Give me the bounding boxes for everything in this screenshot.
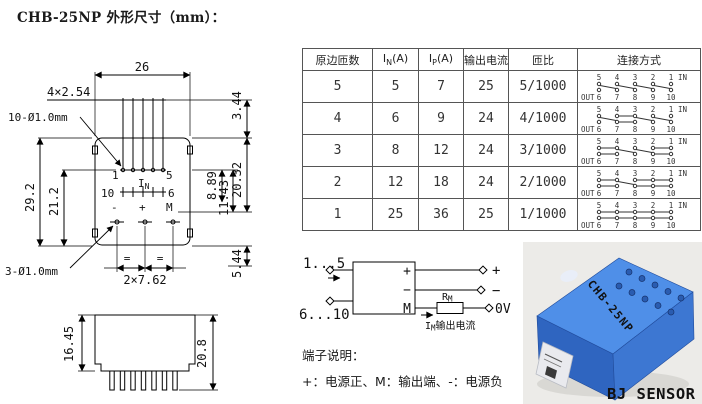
spec-row: 21218242/1000INOUT54321678910 xyxy=(303,167,701,199)
svg-text:29.2: 29.2 xyxy=(23,183,37,212)
svg-text:1: 1 xyxy=(669,105,674,114)
svg-text:IN: IN xyxy=(678,105,687,114)
front-view-labels: 26 4×2.54 10-Ø1.0mm 29.2 21.2 1 5 IN 10 … xyxy=(5,60,244,287)
svg-text:1: 1 xyxy=(669,169,674,178)
svg-text:6: 6 xyxy=(597,93,602,102)
svg-text:6: 6 xyxy=(597,125,602,134)
svg-text:11.43: 11.43 xyxy=(217,180,231,216)
column-header: IP(A) xyxy=(419,49,464,71)
svg-text:9: 9 xyxy=(651,189,656,198)
in-current-cell: 8 xyxy=(373,135,419,167)
turns-ratio-cell: 2/1000 xyxy=(509,167,578,199)
svg-text:5: 5 xyxy=(597,169,602,178)
svg-text:4: 4 xyxy=(615,201,620,210)
connection-cell: INOUT54321678910 xyxy=(578,103,701,135)
svg-text:4: 4 xyxy=(615,73,620,82)
svg-text:IN: IN xyxy=(678,201,687,210)
svg-text:2: 2 xyxy=(651,105,656,114)
svg-text:IN: IN xyxy=(678,73,687,82)
spec-table: 原边匝数IN(A)IP(A)输出电流匝比连接方式557255/1000INOUT… xyxy=(302,48,701,231)
svg-text:3: 3 xyxy=(633,201,638,210)
output-current-cell: 25 xyxy=(464,71,509,103)
dimension-drawing: 26 4×2.54 10-Ø1.0mm 29.2 21.2 1 5 IN 10 … xyxy=(0,40,295,404)
ip-current-cell: 12 xyxy=(419,135,464,167)
ip-current-cell: 18 xyxy=(419,167,464,199)
spec-row: 12536251/1000INOUT54321678910 xyxy=(303,199,701,231)
in-current-cell: 6 xyxy=(373,103,419,135)
terminal-notes-body: +：电源正、M：输出端、-：电源负 xyxy=(302,376,537,389)
column-header: 输出电流 xyxy=(464,49,509,71)
wiring-diagram: 1...5 6...10 + − M + − 0V RM IM输出电流 xyxy=(295,248,520,340)
svg-text:5: 5 xyxy=(597,137,602,146)
output-plus: + xyxy=(492,263,500,279)
svg-text:1: 1 xyxy=(669,73,674,82)
svg-text:IN: IN xyxy=(678,169,687,178)
pin-6-label: 6 xyxy=(168,187,175,200)
svg-text:9: 9 xyxy=(651,125,656,134)
svg-text:2: 2 xyxy=(651,169,656,178)
svg-text:=: = xyxy=(157,252,164,265)
connection-diagram: INOUT54321678910 xyxy=(581,199,697,230)
svg-text:4: 4 xyxy=(615,169,620,178)
svg-text:7: 7 xyxy=(615,125,620,134)
output-current-cell: 24 xyxy=(464,167,509,199)
svg-text:26: 26 xyxy=(135,60,149,74)
spec-row: 557255/1000INOUT54321678910 xyxy=(303,71,701,103)
brand-text: BJ SENSOR xyxy=(607,385,696,403)
turns-ratio-cell: 1/1000 xyxy=(509,199,578,231)
svg-text:8: 8 xyxy=(633,189,638,198)
svg-text:8: 8 xyxy=(633,221,638,230)
column-header: 连接方式 xyxy=(578,49,701,71)
svg-text:6: 6 xyxy=(597,157,602,166)
svg-text:8: 8 xyxy=(633,125,638,134)
box-minus: − xyxy=(403,283,411,298)
pin-1-label: 1 xyxy=(112,169,119,182)
svg-text:10: 10 xyxy=(666,93,676,102)
svg-text:4×2.54: 4×2.54 xyxy=(47,85,90,99)
svg-text:10: 10 xyxy=(666,157,676,166)
svg-text:20.32: 20.32 xyxy=(230,162,244,198)
svg-text:4: 4 xyxy=(615,105,620,114)
product-photo: CHB-25NP BJ SENSOR xyxy=(523,242,702,404)
header-row: 原边匝数IN(A)IP(A)输出电流匝比连接方式 xyxy=(303,49,701,71)
svg-text:9: 9 xyxy=(651,93,656,102)
ip-current-cell: 7 xyxy=(419,71,464,103)
output-zero-volt: 0V xyxy=(495,302,511,317)
svg-text:16.45: 16.45 xyxy=(62,326,76,362)
turns-ratio-cell: 5/1000 xyxy=(509,71,578,103)
svg-text:10: 10 xyxy=(666,189,676,198)
primary-turns-cell: 2 xyxy=(303,167,373,199)
svg-text:3: 3 xyxy=(633,137,638,146)
output-current-cell: 25 xyxy=(464,199,509,231)
rm-resistor-label: RM xyxy=(442,292,453,304)
svg-text:8: 8 xyxy=(633,157,638,166)
svg-text:6: 6 xyxy=(597,221,602,230)
svg-text:2: 2 xyxy=(651,73,656,82)
svg-text:5: 5 xyxy=(597,201,602,210)
svg-text:7: 7 xyxy=(615,221,620,230)
front-view-dimensions xyxy=(38,72,252,272)
svg-text:21.2: 21.2 xyxy=(47,187,61,216)
svg-text:5: 5 xyxy=(597,105,602,114)
svg-text:OUT: OUT xyxy=(581,189,595,198)
svg-text:7: 7 xyxy=(615,157,620,166)
primary-in-pins: 1...5 xyxy=(303,256,345,272)
svg-text:3-Ø1.0mm: 3-Ø1.0mm xyxy=(5,265,58,278)
svg-text:4: 4 xyxy=(615,137,620,146)
spec-row: 3812243/1000INOUT54321678910 xyxy=(303,135,701,167)
plus-pin-label: + xyxy=(139,201,146,214)
column-header: 匝比 xyxy=(509,49,578,71)
minus-pin-label: - xyxy=(111,201,118,214)
svg-text:3: 3 xyxy=(633,105,638,114)
datasheet-page: { "title": "CHB-25NP 外形尺寸（mm）：", "accent… xyxy=(0,0,702,404)
pin-5-label: 5 xyxy=(166,169,173,182)
output-current-cell: 24 xyxy=(464,135,509,167)
svg-text:2: 2 xyxy=(651,137,656,146)
svg-text:2: 2 xyxy=(651,201,656,210)
svg-text:6: 6 xyxy=(597,189,602,198)
terminal-notes-heading: 端子说明： xyxy=(302,350,537,363)
in-current-cell: 5 xyxy=(373,71,419,103)
terminal-notes: 端子说明： +：电源正、M：输出端、-：电源负 xyxy=(302,350,537,388)
in-current-cell: 25 xyxy=(373,199,419,231)
svg-text:20.8: 20.8 xyxy=(195,339,209,368)
svg-text:2×7.62: 2×7.62 xyxy=(123,273,166,287)
box-m: M xyxy=(403,302,411,317)
page-title: CHB-25NP 外形尺寸（mm）： xyxy=(17,6,225,26)
column-header: 原边匝数 xyxy=(303,49,373,71)
svg-text:9: 9 xyxy=(651,221,656,230)
primary-turns-cell: 5 xyxy=(303,71,373,103)
primary-turns-cell: 1 xyxy=(303,199,373,231)
svg-text:3: 3 xyxy=(633,169,638,178)
svg-text:OUT: OUT xyxy=(581,157,595,166)
ip-current-cell: 9 xyxy=(419,103,464,135)
connection-diagram: INOUT54321678910 xyxy=(581,167,697,198)
m-pin-label: M xyxy=(166,201,173,214)
primary-turns-cell: 4 xyxy=(303,103,373,135)
svg-text:1: 1 xyxy=(669,201,674,210)
connection-cell: INOUT54321678910 xyxy=(578,167,701,199)
primary-out-pins: 6...10 xyxy=(299,307,350,323)
in-current-label: IN xyxy=(138,177,150,191)
svg-text:10: 10 xyxy=(666,221,676,230)
turns-ratio-cell: 3/1000 xyxy=(509,135,578,167)
pin-10-label: 10 xyxy=(101,187,114,200)
ip-current-cell: 36 xyxy=(419,199,464,231)
front-view-outline xyxy=(93,98,193,245)
column-header: IN(A) xyxy=(373,49,419,71)
svg-text:=: = xyxy=(124,252,131,265)
output-minus: − xyxy=(492,283,500,299)
svg-text:10: 10 xyxy=(666,125,676,134)
svg-text:10-Ø1.0mm: 10-Ø1.0mm xyxy=(8,111,68,124)
primary-turns-cell: 3 xyxy=(303,135,373,167)
in-current-cell: 12 xyxy=(373,167,419,199)
svg-text:7: 7 xyxy=(615,189,620,198)
output-current-cell: 24 xyxy=(464,103,509,135)
svg-text:OUT: OUT xyxy=(581,125,595,134)
side-view-outline xyxy=(95,315,195,390)
svg-text:OUT: OUT xyxy=(581,93,595,102)
connection-cell: INOUT54321678910 xyxy=(578,71,701,103)
connection-diagram: INOUT54321678910 xyxy=(581,71,697,102)
svg-text:3: 3 xyxy=(633,73,638,82)
spec-row: 469244/1000INOUT54321678910 xyxy=(303,103,701,135)
svg-text:8: 8 xyxy=(633,93,638,102)
svg-text:1: 1 xyxy=(669,137,674,146)
connection-diagram: INOUT54321678910 xyxy=(581,135,697,166)
svg-text:5: 5 xyxy=(597,73,602,82)
im-output-caption: IM输出电流 xyxy=(425,319,476,333)
box-plus: + xyxy=(403,264,411,279)
svg-text:9: 9 xyxy=(651,157,656,166)
connection-cell: INOUT54321678910 xyxy=(578,199,701,231)
svg-text:IN: IN xyxy=(678,137,687,146)
svg-text:5.44: 5.44 xyxy=(230,249,244,278)
svg-text:OUT: OUT xyxy=(581,221,595,230)
svg-text:3.44: 3.44 xyxy=(230,91,244,120)
turns-ratio-cell: 4/1000 xyxy=(509,103,578,135)
svg-text:7: 7 xyxy=(615,93,620,102)
connection-cell: INOUT54321678910 xyxy=(578,135,701,167)
connection-diagram: INOUT54321678910 xyxy=(581,103,697,134)
